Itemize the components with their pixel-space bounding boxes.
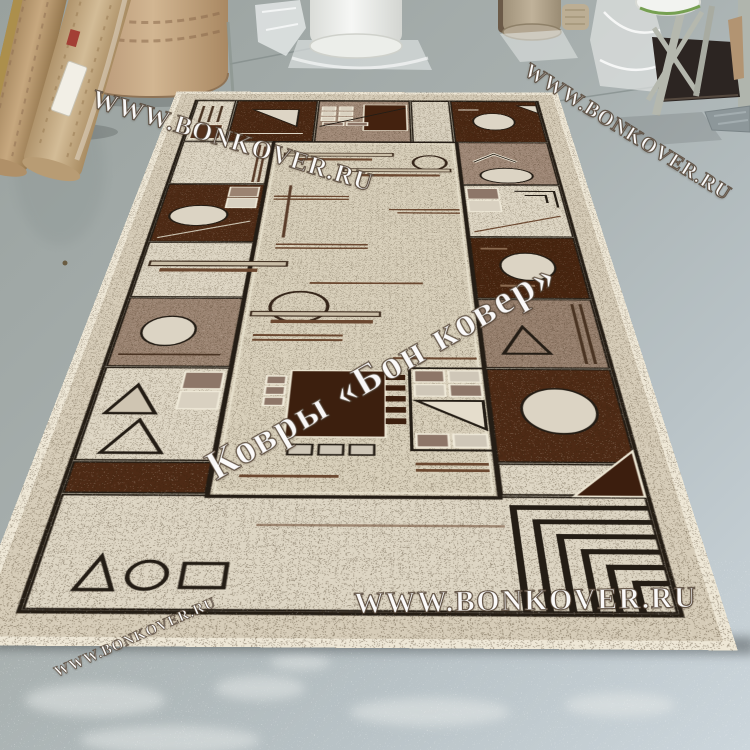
watermark-bottom: WWW.BONKOVER.RU	[354, 581, 698, 621]
warehouse-rug-photo: WWW.BONKOVER.RU WWW.BONKOVER.RU Ковры «Б…	[0, 0, 750, 750]
